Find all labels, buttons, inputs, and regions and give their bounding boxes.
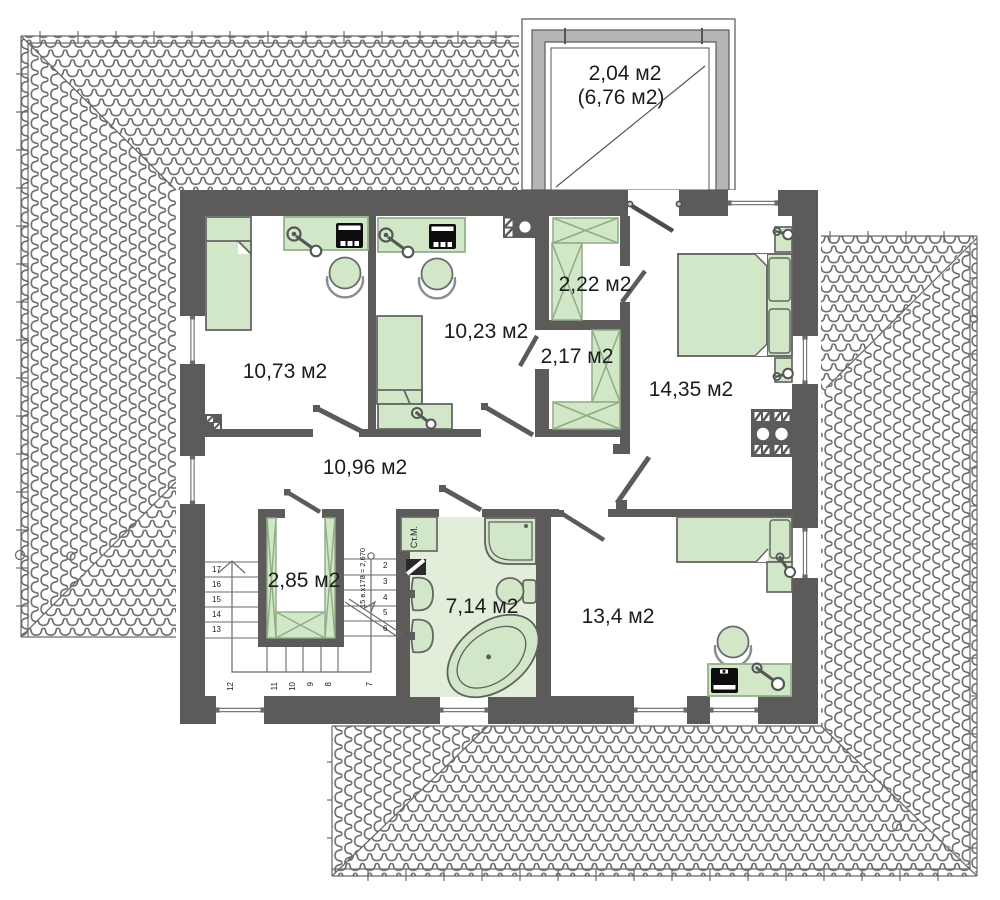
- svg-text:12: 12: [226, 681, 235, 690]
- svg-text:10,96 м2: 10,96 м2: [323, 456, 408, 479]
- svg-text:11: 11: [270, 681, 279, 690]
- svg-text:Ст.М.: Ст.М.: [409, 526, 419, 548]
- svg-text:2,85 м2: 2,85 м2: [268, 569, 341, 592]
- svg-text:7,14 м2: 7,14 м2: [446, 595, 519, 618]
- svg-text:2: 2: [383, 561, 388, 570]
- svg-text:15 в.х178 = 2,670: 15 в.х178 = 2,670: [358, 548, 367, 608]
- svg-text:7: 7: [365, 681, 374, 686]
- svg-text:2,04 м2: 2,04 м2: [589, 62, 662, 85]
- svg-text:2,17 м2: 2,17 м2: [541, 345, 614, 368]
- svg-text:5: 5: [383, 608, 388, 617]
- svg-text:17: 17: [212, 565, 221, 574]
- svg-text:9: 9: [306, 681, 315, 686]
- svg-text:14,35 м2: 14,35 м2: [649, 378, 734, 401]
- svg-text:10: 10: [288, 681, 297, 690]
- svg-text:15: 15: [212, 595, 221, 604]
- svg-text:3: 3: [383, 577, 388, 586]
- svg-text:10,23 м2: 10,23 м2: [444, 320, 529, 343]
- svg-text:6: 6: [383, 624, 388, 633]
- svg-text:13: 13: [212, 625, 221, 634]
- svg-text:14: 14: [212, 610, 221, 619]
- svg-text:13,4 м2: 13,4 м2: [582, 605, 655, 628]
- svg-text:4: 4: [383, 593, 388, 602]
- svg-text:16: 16: [212, 580, 221, 589]
- svg-text:10,73 м2: 10,73 м2: [243, 360, 328, 383]
- svg-text:2,22 м2: 2,22 м2: [559, 273, 632, 296]
- svg-text:8: 8: [324, 681, 333, 686]
- svg-text:(6,76 м2): (6,76 м2): [578, 86, 665, 109]
